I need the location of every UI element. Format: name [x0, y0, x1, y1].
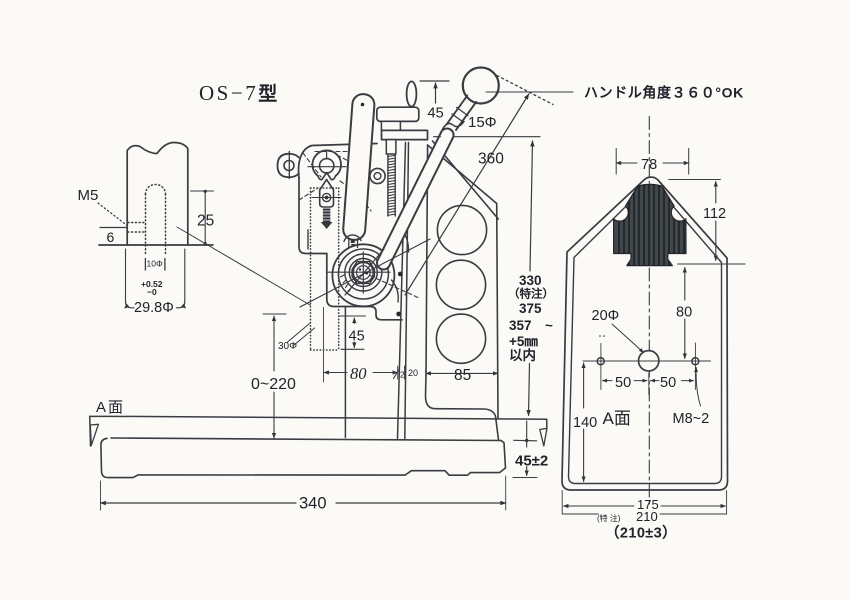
svg-text:(特 注): (特 注)	[597, 513, 621, 523]
svg-text:375: 375	[519, 301, 542, 316]
svg-text:80: 80	[676, 305, 692, 321]
svg-text:45: 45	[349, 329, 365, 345]
svg-text:15Φ: 15Φ	[468, 114, 497, 131]
svg-text:50: 50	[660, 375, 676, 391]
svg-text:340: 340	[299, 495, 327, 513]
svg-text:357 ~: 357 ~	[509, 318, 553, 333]
svg-text:2: 2	[400, 370, 405, 380]
svg-text:20Φ: 20Φ	[592, 308, 620, 324]
svg-text:6: 6	[107, 229, 115, 245]
svg-text:25: 25	[197, 213, 214, 230]
svg-text:80: 80	[350, 364, 367, 383]
svg-text:29.8Φ: 29.8Φ	[134, 300, 174, 316]
svg-text:OS−7型: OS−7型	[199, 81, 280, 105]
svg-text:0~220: 0~220	[251, 376, 296, 393]
svg-text:A面: A面	[603, 409, 631, 428]
svg-text:85: 85	[454, 367, 471, 384]
svg-text:45±2: 45±2	[515, 453, 548, 470]
svg-text:210: 210	[636, 509, 658, 524]
svg-text:360: 360	[478, 151, 504, 168]
svg-text:M5: M5	[78, 187, 99, 204]
svg-text:+5㎜: +5㎜	[509, 334, 538, 349]
svg-text:140: 140	[573, 415, 597, 431]
svg-text:20: 20	[408, 368, 418, 378]
svg-text:M8~2: M8~2	[673, 411, 710, 427]
svg-text:（210±3）: （210±3）	[605, 524, 677, 542]
svg-text:A面: A面	[96, 399, 125, 416]
svg-text:112: 112	[703, 206, 726, 222]
svg-text:50: 50	[615, 375, 631, 391]
svg-text:（特注）: （特注）	[508, 287, 554, 301]
svg-text:330: 330	[519, 273, 542, 288]
svg-text:以内: 以内	[509, 347, 536, 363]
svg-text:45: 45	[428, 106, 444, 122]
svg-text:30Φ: 30Φ	[278, 341, 297, 352]
svg-text:78: 78	[641, 157, 657, 173]
svg-text:−0: −0	[147, 287, 157, 297]
svg-text:ハンドル角度３６０°OK: ハンドル角度３６０°OK	[584, 85, 744, 101]
svg-text:10Φ: 10Φ	[147, 259, 163, 269]
